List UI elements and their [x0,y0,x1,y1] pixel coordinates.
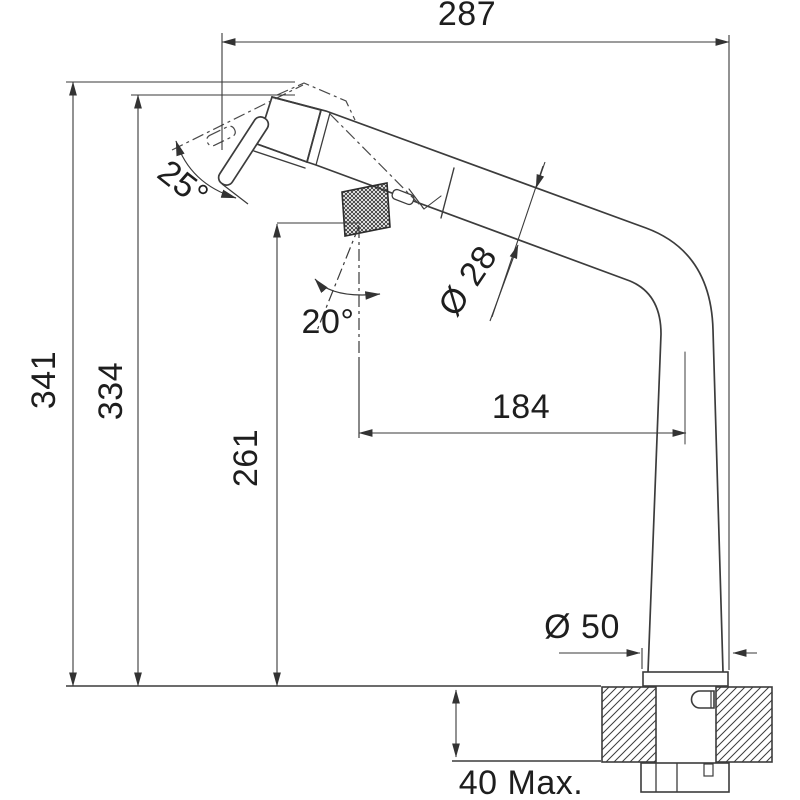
handle-knob [342,183,390,236]
counter-hatch-left [602,687,656,762]
tube-joint-line [441,168,454,218]
aerator-face-plate [216,114,271,188]
dim-label-261: 261 [229,429,263,487]
dim-label-40max: 40 Max. [459,766,583,800]
dim-28-arrow-top [536,162,545,188]
angle-label-20: 20° [302,305,355,339]
spout-outer-edge [272,97,723,672]
dim-label-341: 341 [27,351,61,409]
counter-hatch-right [716,687,772,762]
nut-tab [704,764,713,776]
dimension-dia50 [559,648,757,669]
technical-drawing-canvas: 287 341 334 261 184 Ø 28 Ø 50 40 Max. 25… [0,0,800,800]
base-flange [643,672,728,686]
dim-label-334: 334 [94,362,128,420]
mounting-nut [641,763,729,792]
dimension-287 [222,33,729,670]
knurled-knob [342,183,390,236]
raised-aerator-outline [205,124,237,147]
dim-label-184: 184 [492,390,550,424]
dim-label-287: 287 [438,0,496,31]
dimension-dia28 [490,162,545,321]
countertop-section [66,686,772,762]
dimension-261 [277,223,360,686]
angle-20-arc [315,279,380,295]
dim-label-dia50: Ø 50 [544,610,620,644]
faucet-body [216,97,728,686]
spray-head-chin [254,151,305,168]
